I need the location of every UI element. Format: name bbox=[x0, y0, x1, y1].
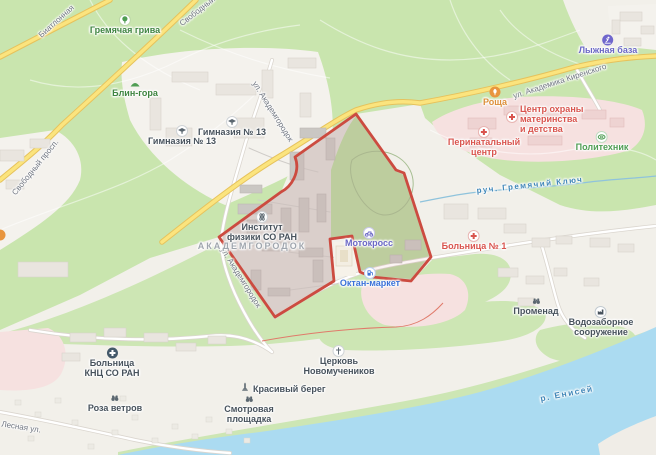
tree-icon bbox=[119, 13, 131, 25]
map-layers bbox=[0, 0, 656, 455]
poi-gymnasium-13-a[interactable]: Гимназия № 13 bbox=[148, 124, 216, 146]
pink-zone-knts bbox=[0, 328, 66, 390]
poi-politekhnik[interactable]: Политехник bbox=[576, 130, 629, 152]
poi-roza-vetrov[interactable]: Роза ветров bbox=[88, 391, 142, 413]
binoculars-icon bbox=[243, 392, 255, 404]
poi-gremyachaya-griva[interactable]: Гремячая грива bbox=[90, 13, 160, 35]
binoculars-icon bbox=[109, 391, 121, 403]
fuel-pump-icon bbox=[364, 266, 376, 278]
ski-base-icon bbox=[602, 33, 614, 45]
hill-icon bbox=[129, 76, 141, 88]
edge-poi-icon bbox=[0, 228, 6, 246]
church-cross-icon bbox=[333, 344, 345, 356]
poi-bolnitsa-knts[interactable]: Больница КНЦ СО РАН bbox=[84, 346, 139, 378]
poi-tserkov[interactable]: Церковь Новомучеников bbox=[304, 344, 375, 376]
poi-institute-physics[interactable]: Институт физики СО РАН bbox=[227, 210, 297, 242]
poi-roshcha[interactable]: Роща bbox=[483, 85, 507, 107]
poi-lyzhnaya-baza[interactable]: Лыжная база bbox=[579, 33, 638, 55]
medical-cross-icon bbox=[468, 229, 480, 241]
clinic-icon bbox=[106, 346, 118, 358]
poi-smotrovaya[interactable]: Смотровая площадка bbox=[224, 392, 273, 424]
school-icon bbox=[176, 124, 188, 136]
motocross-icon bbox=[363, 226, 375, 238]
medical-cross-icon bbox=[478, 125, 490, 137]
poi-motocross[interactable]: Мотокросс bbox=[345, 226, 393, 248]
district-label: АКАДЕМГОРОДОК bbox=[198, 241, 306, 251]
poi-promenad[interactable]: Променад bbox=[513, 294, 558, 316]
poi-vodozabor[interactable]: Водозаборное сооружение bbox=[569, 305, 634, 337]
leisure-icon bbox=[489, 85, 501, 97]
school-icon bbox=[226, 115, 238, 127]
atom-icon bbox=[256, 210, 268, 222]
poi-oktan-market[interactable]: Октан-маркет bbox=[340, 266, 400, 288]
poi-bolnitsa-1[interactable]: Больница № 1 bbox=[442, 229, 507, 251]
map-canvas[interactable]: Биатлонная Свободный Свободный просп. ул… bbox=[0, 0, 656, 455]
waterworks-icon bbox=[595, 305, 607, 317]
poi-perinatal-center[interactable]: Перинатальный центр bbox=[448, 125, 520, 157]
stadium-icon bbox=[596, 130, 608, 142]
poi-blin-gora[interactable]: Блин-гора bbox=[112, 76, 158, 98]
binoculars-icon bbox=[530, 294, 542, 306]
